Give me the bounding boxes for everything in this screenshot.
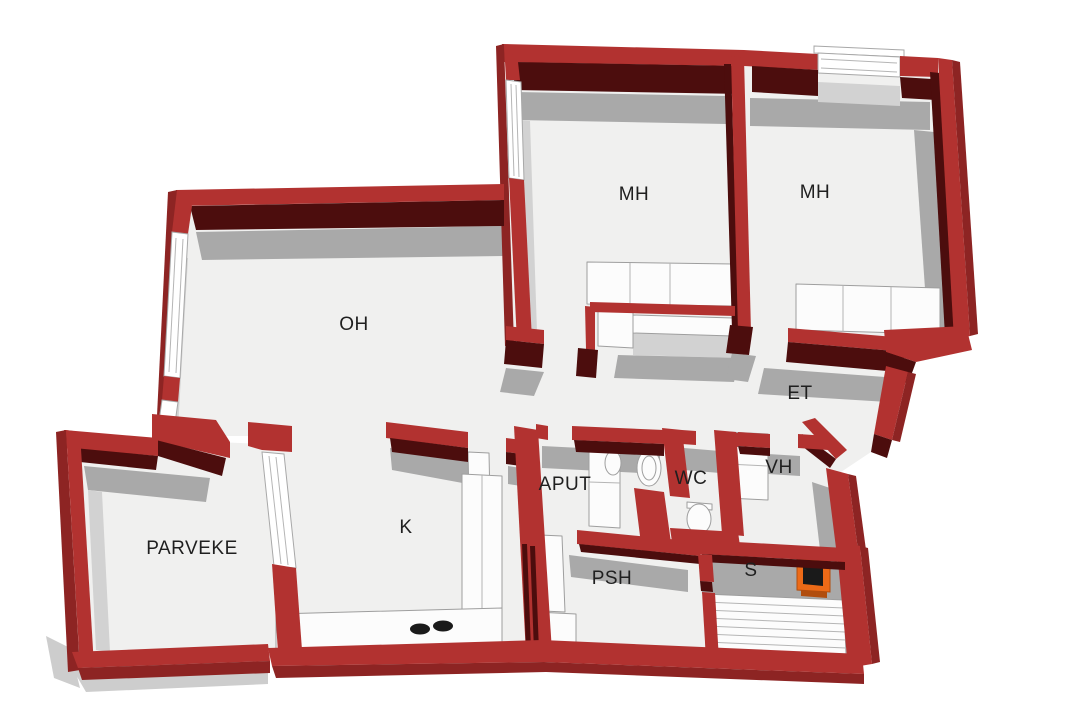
shadow — [633, 333, 733, 358]
room-label-kitchen: K — [399, 517, 412, 538]
shadow — [196, 226, 504, 260]
room-label-entry-hall: ET — [787, 383, 812, 404]
sink-utility — [605, 451, 621, 475]
room-label-bedroom-left: MH — [619, 184, 650, 205]
floor-plan-svg: MH MH OH ET APUT WC VH K PARVEKE PSH S — [0, 0, 1066, 711]
wall-segment — [700, 581, 713, 592]
sink-basin-inner — [642, 456, 656, 480]
wall-segment — [752, 66, 818, 96]
wall-segment — [536, 424, 548, 440]
wall-segment — [576, 348, 598, 378]
shadow — [818, 82, 900, 106]
room-label-wardrobe-room: VH — [765, 457, 792, 478]
cabinet-hall — [633, 315, 733, 336]
room-label-balcony: PARVEKE — [146, 538, 238, 559]
floor-plan-page: MH MH OH ET APUT WC VH K PARVEKE PSH S — [0, 0, 1066, 711]
wall-segment — [162, 376, 180, 402]
wall-segment — [585, 306, 595, 350]
wall-segment — [682, 430, 696, 445]
window — [506, 80, 524, 180]
shadow — [614, 355, 740, 382]
wall-segment — [798, 434, 828, 450]
wall-segment — [504, 340, 544, 368]
shadow — [516, 92, 726, 124]
wardrobe-bedroom-right — [796, 284, 940, 334]
room-label-toilet-room: WC — [675, 468, 708, 489]
room-label-living-room: OH — [339, 314, 369, 335]
stove-burner — [433, 621, 453, 632]
room-label-bedroom-right: MH — [800, 182, 831, 203]
window — [818, 53, 900, 77]
room-label-sauna: S — [744, 560, 757, 581]
wall-segment — [698, 554, 714, 582]
stove-burner — [410, 624, 430, 635]
wardrobe-bedroom-left — [587, 262, 733, 306]
room-label-shower-room: PSH — [592, 568, 633, 589]
wall-segment — [514, 62, 744, 94]
wall-segment — [248, 422, 292, 452]
wall-segment — [738, 432, 770, 448]
cabinet-hall — [598, 310, 633, 348]
wall-segment — [726, 325, 753, 355]
room-label-utility-room: APUT — [539, 474, 592, 495]
